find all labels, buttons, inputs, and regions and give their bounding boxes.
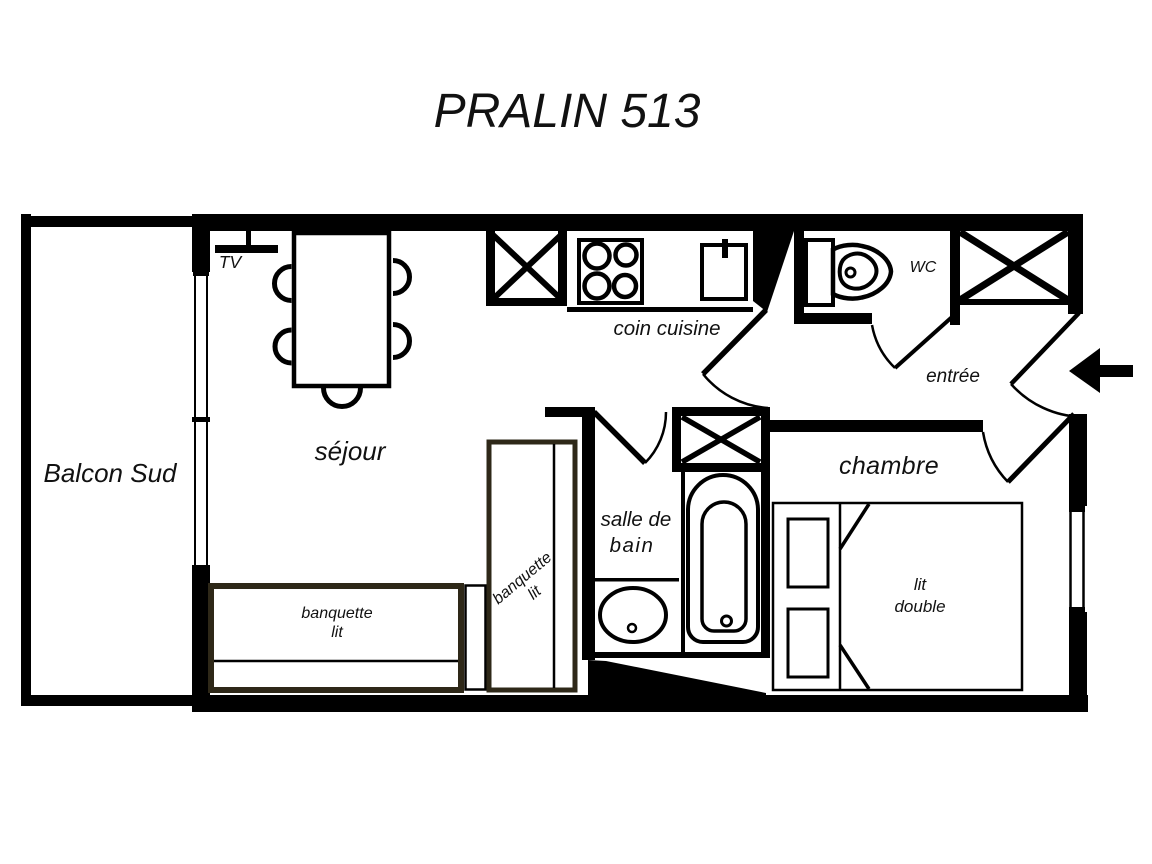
svg-text:entrée: entrée <box>926 366 980 387</box>
svg-text:salle de: salle de <box>601 508 672 531</box>
svg-text:lit: lit <box>331 624 343 641</box>
svg-text:WC: WC <box>910 259 937 276</box>
svg-text:bain: bain <box>610 534 655 557</box>
svg-text:chambre: chambre <box>839 452 939 480</box>
svg-text:PRALIN 513: PRALIN 513 <box>434 85 701 138</box>
svg-text:Balcon Sud: Balcon Sud <box>44 458 179 488</box>
svg-text:séjour: séjour <box>315 436 387 466</box>
svg-text:TV: TV <box>219 252 244 272</box>
svg-text:double: double <box>894 597 945 616</box>
svg-text:banquette: banquette <box>301 605 372 622</box>
svg-text:lit: lit <box>914 575 928 594</box>
svg-text:coin cuisine: coin cuisine <box>613 317 720 340</box>
